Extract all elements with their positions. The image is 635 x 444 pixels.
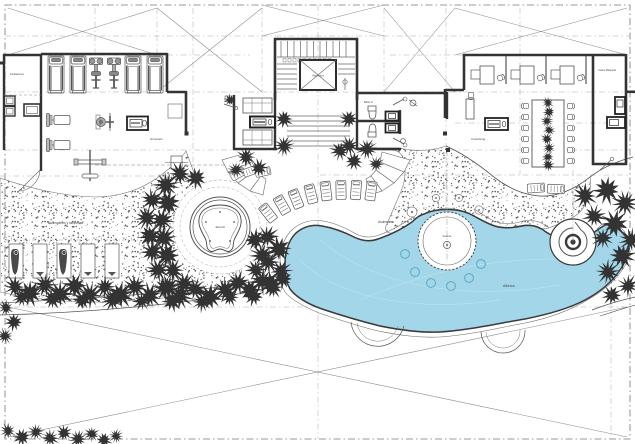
svg-text:Cuarto Maquinas: Cuarto Maquinas: [598, 69, 617, 72]
svg-text:Ascensor: Ascensor: [312, 74, 324, 78]
svg-text:Coworking: Coworking: [471, 137, 486, 141]
svg-text:Jacuzzi: Jacuzzi: [215, 225, 225, 229]
svg-text:Baño H: Baño H: [364, 100, 373, 104]
svg-text:Alberca: Alberca: [503, 284, 515, 288]
svg-text:Asoleadero: Asoleadero: [378, 220, 394, 224]
svg-text:Asoleaderos y tumbonas: Asoleaderos y tumbonas: [48, 221, 83, 225]
svg-text:Fuente: Fuente: [443, 234, 452, 238]
svg-text:Gimnasio: Gimnasio: [150, 137, 163, 141]
svg-text:Instalaciones: Instalaciones: [10, 73, 25, 76]
